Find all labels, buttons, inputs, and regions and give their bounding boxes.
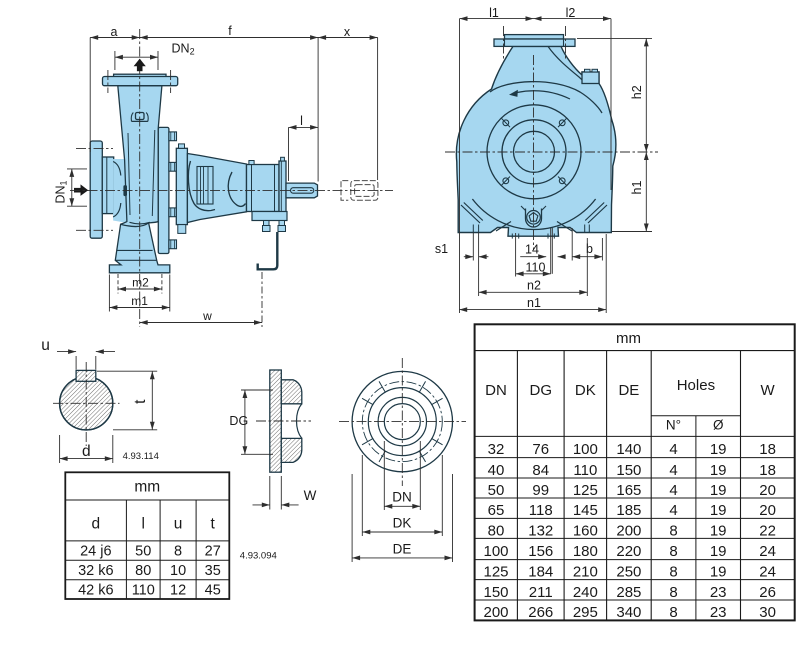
svg-text:d: d xyxy=(92,516,101,533)
svg-text:220: 220 xyxy=(616,543,641,560)
svg-text:8: 8 xyxy=(669,604,677,621)
svg-text:145: 145 xyxy=(573,502,598,519)
svg-text:8: 8 xyxy=(669,564,677,581)
svg-text:4: 4 xyxy=(669,441,677,458)
svg-text:m2: m2 xyxy=(132,276,149,290)
svg-text:h2: h2 xyxy=(630,85,644,99)
svg-text:u: u xyxy=(41,337,50,354)
svg-text:19: 19 xyxy=(710,564,727,581)
svg-text:x: x xyxy=(344,25,351,39)
svg-text:m1: m1 xyxy=(131,294,148,308)
svg-text:12: 12 xyxy=(170,582,186,598)
svg-text:42 k6: 42 k6 xyxy=(78,582,113,598)
svg-text:19: 19 xyxy=(710,502,727,519)
svg-text:Holes: Holes xyxy=(677,377,715,394)
svg-text:80: 80 xyxy=(135,563,151,579)
svg-text:DE: DE xyxy=(618,382,639,399)
svg-text:165: 165 xyxy=(616,482,641,499)
svg-text:150: 150 xyxy=(483,584,508,601)
svg-text:50: 50 xyxy=(488,482,505,499)
svg-text:l2: l2 xyxy=(566,6,576,20)
svg-text:132: 132 xyxy=(528,522,553,539)
svg-text:10: 10 xyxy=(170,563,186,579)
svg-text:4: 4 xyxy=(669,462,677,479)
svg-text:t: t xyxy=(211,516,216,533)
svg-text:110: 110 xyxy=(132,582,155,598)
svg-text:150: 150 xyxy=(616,462,641,479)
svg-text:19: 19 xyxy=(710,543,727,560)
svg-text:185: 185 xyxy=(616,502,641,519)
svg-text:84: 84 xyxy=(532,462,549,479)
svg-text:19: 19 xyxy=(710,441,727,458)
svg-text:mm: mm xyxy=(616,330,641,347)
svg-text:285: 285 xyxy=(616,584,641,601)
svg-text:160: 160 xyxy=(573,522,598,539)
svg-text:35: 35 xyxy=(205,563,221,579)
svg-text:40: 40 xyxy=(488,462,505,479)
svg-text:100: 100 xyxy=(573,441,598,458)
svg-text:295: 295 xyxy=(573,604,598,621)
svg-text:24: 24 xyxy=(759,543,776,560)
svg-text:d: d xyxy=(82,443,91,460)
svg-text:DK: DK xyxy=(393,515,412,530)
svg-text:32: 32 xyxy=(488,441,505,458)
svg-text:156: 156 xyxy=(528,543,553,560)
svg-text:14: 14 xyxy=(525,242,539,256)
svg-text:f: f xyxy=(228,24,232,38)
svg-text:99: 99 xyxy=(532,482,549,499)
svg-text:18: 18 xyxy=(759,462,776,479)
svg-text:211: 211 xyxy=(529,584,553,601)
svg-text:DN: DN xyxy=(392,490,412,505)
svg-text:8: 8 xyxy=(669,584,677,601)
svg-text:n2: n2 xyxy=(527,279,541,293)
svg-text:20: 20 xyxy=(759,482,776,499)
svg-text:DN1: DN1 xyxy=(54,180,69,203)
svg-text:266: 266 xyxy=(528,604,553,621)
svg-text:19: 19 xyxy=(710,482,727,499)
svg-text:110: 110 xyxy=(526,261,546,275)
svg-text:DN2: DN2 xyxy=(172,42,195,57)
svg-text:24 j6: 24 j6 xyxy=(80,544,111,560)
svg-text:125: 125 xyxy=(483,564,508,581)
svg-text:DG: DG xyxy=(530,382,553,399)
svg-text:19: 19 xyxy=(710,522,727,539)
svg-text:19: 19 xyxy=(710,462,727,479)
svg-text:240: 240 xyxy=(573,584,598,601)
svg-text:n1: n1 xyxy=(527,296,541,310)
svg-text:mm: mm xyxy=(134,479,160,496)
svg-text:w: w xyxy=(202,309,212,323)
svg-text:8: 8 xyxy=(174,544,182,560)
svg-text:4: 4 xyxy=(669,502,677,519)
svg-text:DN: DN xyxy=(485,382,507,399)
svg-text:N°: N° xyxy=(666,418,681,433)
svg-text:26: 26 xyxy=(759,584,776,601)
svg-text:45: 45 xyxy=(205,582,221,598)
svg-text:184: 184 xyxy=(528,564,553,581)
svg-text:250: 250 xyxy=(616,564,641,581)
svg-text:76: 76 xyxy=(532,441,549,458)
svg-text:4.93.094: 4.93.094 xyxy=(240,550,277,561)
svg-text:50: 50 xyxy=(135,544,151,560)
svg-text:W: W xyxy=(761,382,776,399)
svg-text:200: 200 xyxy=(483,604,508,621)
svg-text:118: 118 xyxy=(529,502,553,519)
svg-text:Ø: Ø xyxy=(713,418,724,433)
svg-text:l1: l1 xyxy=(489,6,499,20)
svg-text:23: 23 xyxy=(710,604,727,621)
svg-text:30: 30 xyxy=(759,604,776,621)
svg-text:8: 8 xyxy=(669,543,677,560)
svg-text:110: 110 xyxy=(573,462,597,479)
svg-text:22: 22 xyxy=(759,522,776,539)
svg-text:27: 27 xyxy=(205,544,221,560)
svg-text:125: 125 xyxy=(573,482,598,499)
svg-text:s1: s1 xyxy=(435,242,448,256)
svg-text:80: 80 xyxy=(488,522,505,539)
svg-text:4.93.114: 4.93.114 xyxy=(123,451,159,462)
svg-text:DG: DG xyxy=(229,414,248,428)
svg-text:23: 23 xyxy=(710,584,727,601)
svg-text:180: 180 xyxy=(573,543,598,560)
svg-text:210: 210 xyxy=(573,564,598,581)
svg-text:l: l xyxy=(300,114,303,128)
svg-text:340: 340 xyxy=(616,604,641,621)
svg-text:t: t xyxy=(132,399,149,404)
svg-text:4: 4 xyxy=(669,482,677,499)
svg-text:l: l xyxy=(142,516,145,533)
svg-text:65: 65 xyxy=(488,502,505,519)
svg-text:32 k6: 32 k6 xyxy=(78,563,113,579)
svg-text:DE: DE xyxy=(393,541,412,556)
svg-text:140: 140 xyxy=(616,441,641,458)
svg-text:24: 24 xyxy=(759,564,776,581)
svg-text:200: 200 xyxy=(616,522,641,539)
svg-text:u: u xyxy=(174,516,183,533)
svg-text:20: 20 xyxy=(759,502,776,519)
svg-text:a: a xyxy=(111,25,118,39)
svg-text:W: W xyxy=(304,488,317,503)
svg-text:8: 8 xyxy=(669,522,677,539)
svg-text:18: 18 xyxy=(759,441,776,458)
svg-text:DK: DK xyxy=(575,382,596,399)
svg-text:h1: h1 xyxy=(630,181,644,195)
svg-text:100: 100 xyxy=(483,543,508,560)
